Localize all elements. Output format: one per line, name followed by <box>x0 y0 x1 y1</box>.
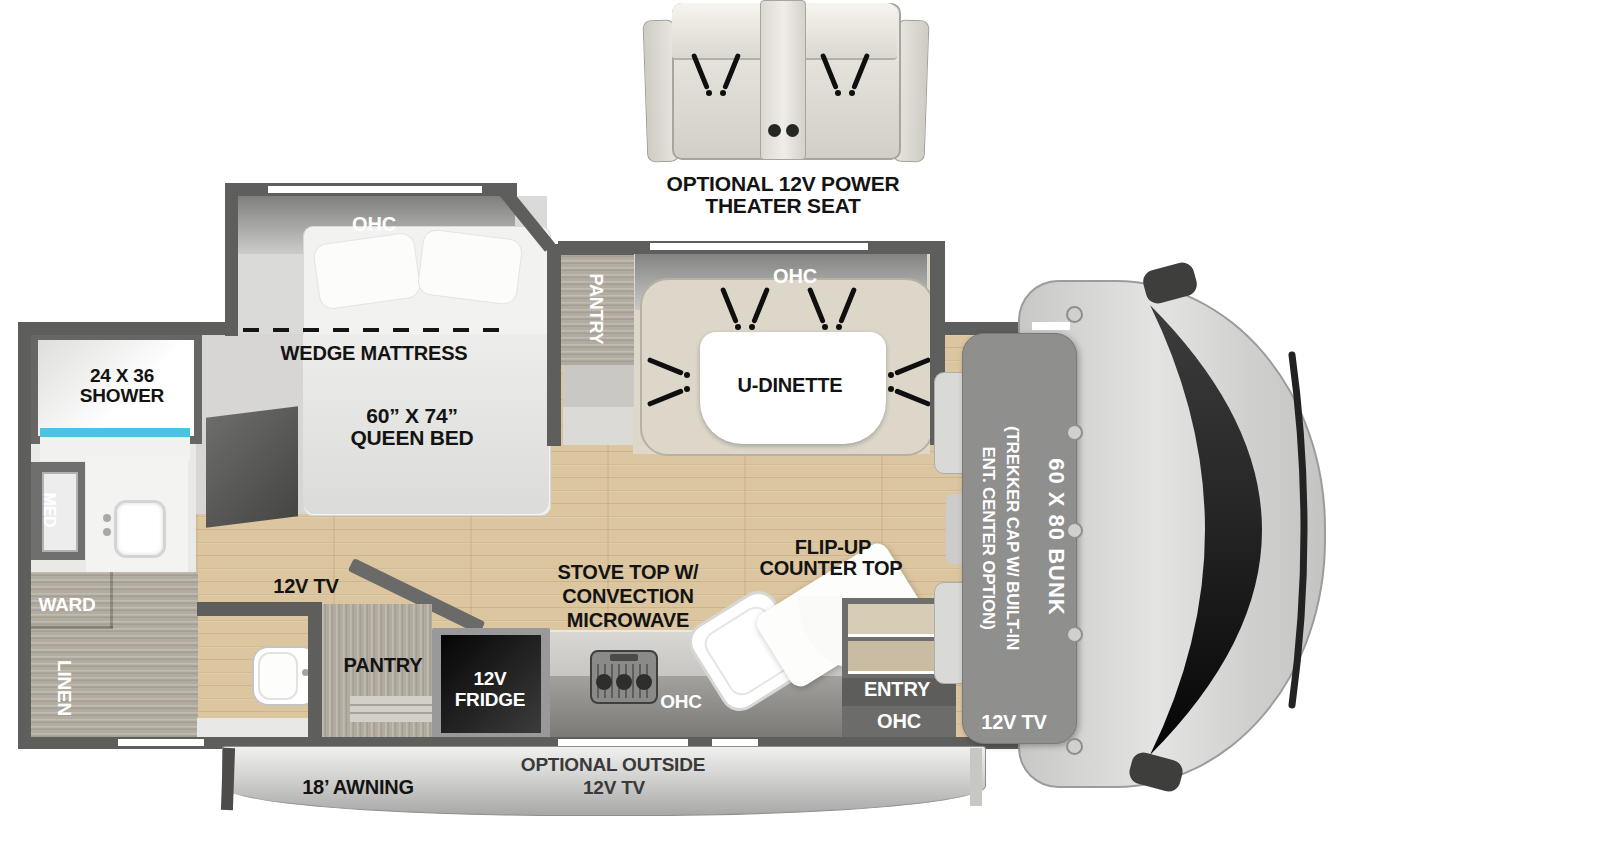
pantry-shelf <box>350 696 432 722</box>
linen-label: LINEN <box>55 660 74 716</box>
wall-left <box>18 322 31 749</box>
stove-top-icon <box>590 650 658 704</box>
awning-end-cap-right <box>970 748 982 806</box>
fridge-label-line2: FRIDGE <box>455 690 526 709</box>
cab-note-line2: ENT. CENTER OPTION) <box>980 446 997 629</box>
seatbelt-icon <box>885 359 935 405</box>
entry-step <box>848 604 946 637</box>
awning-end-cap-left <box>221 748 235 810</box>
bedroom-slide-wall-left <box>225 183 238 336</box>
shower-label: SHOWER <box>80 386 164 405</box>
toilet-room-wall-right <box>308 602 322 738</box>
bed-size-label: 60” X 74” <box>366 405 458 426</box>
rivet <box>1066 626 1083 643</box>
wall-bedroom-pantry <box>547 244 561 446</box>
wardrobe-label: WARD <box>38 595 95 614</box>
cab-window-strip <box>1032 322 1070 330</box>
wall-top-left <box>18 322 231 335</box>
theater-seat-label-line1: OPTIONAL 12V POWER <box>667 173 900 194</box>
cab-tv-label: 12V TV <box>981 712 1047 732</box>
bedroom-window <box>268 186 482 193</box>
shower-water-strip <box>40 428 190 437</box>
rivet <box>1066 306 1083 323</box>
flip-up-label-line1: FLIP-UP <box>795 537 871 557</box>
cupholder-icon <box>768 124 781 137</box>
theater-seat-console <box>760 0 806 160</box>
stove-label-line3: MICROWAVE <box>567 610 689 630</box>
cabinet-seam <box>25 626 113 629</box>
wedge-mattress-label: WEDGE MATTRESS <box>281 343 468 363</box>
bedroom-tv-cabinet <box>206 406 298 527</box>
rivet <box>1066 424 1083 441</box>
wall-pantry-top <box>558 241 635 254</box>
rivet <box>1066 738 1083 755</box>
cupholder-icon <box>786 124 799 137</box>
bath-sink <box>114 500 166 558</box>
stove-label-line1: STOVE TOP W/ <box>558 562 699 582</box>
u-dinette-label: U-DINETTE <box>738 375 843 395</box>
shower-size-label: 24 X 36 <box>90 366 154 385</box>
flip-up-label-line2: COUNTER TOP <box>760 558 903 578</box>
bunk-label: 60 X 80 BUNK <box>1045 458 1067 616</box>
seatbelt-icon <box>809 283 855 333</box>
bedroom-ohc-label: OHC <box>352 214 396 234</box>
pantry-lower-block <box>563 407 633 445</box>
entry-ohc-label: OHC <box>877 711 921 731</box>
bed-pillow <box>312 231 422 311</box>
dinette-ohc-label: OHC <box>773 266 817 286</box>
seatbelt-icon <box>643 359 693 405</box>
toilet-lid <box>258 652 298 700</box>
entry-step <box>848 641 946 674</box>
dinette-pantry-label: PANTRY <box>587 274 605 345</box>
faucet-knob <box>103 514 111 522</box>
bedroom-tv-label: 12V TV <box>273 576 339 596</box>
pantry-counter-block <box>563 365 634 407</box>
cabinet-seam <box>110 572 113 628</box>
pantry-shelf-line <box>350 704 432 706</box>
cab-note-line1: (TREKKER CAP W/ BUILT-IN <box>1004 426 1021 650</box>
seatbelt-icon <box>693 49 739 99</box>
bed-type-label: QUEEN BED <box>350 427 473 448</box>
outside-tv-label-line2: 12V TV <box>583 778 645 797</box>
fridge-label-line1: 12V <box>473 669 506 688</box>
toilet-room-floor-strip <box>197 718 309 738</box>
entry-label: ENTRY <box>864 679 930 699</box>
bottom-window <box>558 739 688 746</box>
stove-label-line2: CONVECTION <box>562 586 693 606</box>
seatbelt-icon <box>822 49 868 99</box>
seatbelt-icon <box>722 283 768 333</box>
awning-label: 18’ AWNING <box>302 777 414 797</box>
bottom-window <box>712 739 758 746</box>
med-cabinet-label: MED <box>41 493 57 528</box>
rv-floorplan-diagram: OPTIONAL 12V POWER THEATER SEAT OHC WEDG… <box>0 0 1600 844</box>
dinette-window <box>650 243 868 250</box>
bottom-window <box>118 739 204 746</box>
toilet-room-wall-top <box>197 602 321 616</box>
theater-seat-label-line2: THEATER SEAT <box>705 195 861 216</box>
wedge-mattress-dashed-line <box>243 328 501 332</box>
kitchen-pantry-label: PANTRY <box>344 655 423 675</box>
faucet-knob <box>103 528 111 536</box>
outside-tv-label-line1: OPTIONAL OUTSIDE <box>521 755 705 774</box>
pantry-shelf-line <box>350 712 432 714</box>
bed-pillow <box>416 228 523 306</box>
kitchen-ohc-label: OHC <box>660 692 702 711</box>
